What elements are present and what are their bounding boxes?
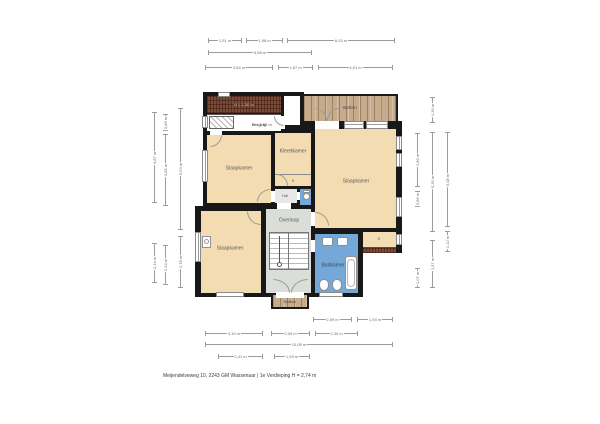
floorplan-canvas: Slaapkamer Kleedkamer K Hal Slaapkamer O… bbox=[0, 0, 600, 424]
dimension-tick bbox=[272, 65, 273, 70]
dimension-tick bbox=[415, 287, 420, 288]
dimension-tick bbox=[246, 38, 247, 43]
dimension-line: 1,98 m bbox=[246, 37, 283, 44]
dimension-label: 3,85 m bbox=[164, 163, 168, 177]
dimension-tick bbox=[315, 331, 316, 336]
dimension-label: 3,64 m bbox=[232, 66, 246, 70]
dimension-tick bbox=[271, 331, 272, 336]
dimension-label: 5,35 m bbox=[431, 175, 435, 189]
dimension-tick bbox=[318, 65, 319, 70]
dimension-line: 1,93 m bbox=[357, 316, 393, 323]
dimension-tick bbox=[351, 317, 352, 322]
dimension-label: 6,03 m bbox=[334, 39, 348, 43]
dimension-label: 1,12 m bbox=[446, 234, 450, 248]
dimension-tick bbox=[205, 65, 206, 70]
dimension-line: 2,41 m bbox=[218, 353, 263, 360]
dimension-label: 4,01 m bbox=[348, 66, 362, 70]
dimension-line: 5,08 m bbox=[444, 132, 451, 227]
dimension-tick bbox=[392, 65, 393, 70]
dimension-label: 2,30 m bbox=[329, 332, 343, 336]
dimension-line: 2,89 m bbox=[414, 133, 421, 187]
dimension-line: 4,01 m bbox=[318, 64, 393, 71]
dimension-label: 1,93 m bbox=[368, 318, 382, 322]
dimension-tick bbox=[163, 134, 168, 135]
dimension-tick bbox=[357, 317, 358, 322]
dimension-line: 6,53 m bbox=[177, 108, 184, 230]
dimension-line: 2,78 m bbox=[177, 236, 184, 288]
dimension-tick bbox=[430, 132, 435, 133]
dimension-line: 1,51 m bbox=[208, 37, 242, 44]
dimension-tick bbox=[152, 112, 157, 113]
dimension-tick bbox=[262, 354, 263, 359]
dimension-label: 2,78 m bbox=[179, 255, 183, 269]
dimension-tick bbox=[208, 38, 209, 43]
dimension-line: 0,86 m bbox=[162, 114, 169, 131]
dimension-tick bbox=[311, 50, 312, 55]
dimension-tick bbox=[445, 132, 450, 133]
dimension-tick bbox=[208, 50, 209, 55]
dimension-label: 5,58 m bbox=[253, 51, 267, 55]
dimension-line: 10,05 m bbox=[205, 341, 393, 348]
dimension-tick bbox=[282, 38, 283, 43]
dimension-tick bbox=[313, 317, 314, 322]
dimension-line: 1,87 m bbox=[278, 64, 313, 71]
dimension-tick bbox=[392, 317, 393, 322]
dimension-label: 2,14 m bbox=[164, 258, 168, 272]
dimension-line: 1,07 m bbox=[414, 268, 421, 288]
dimension-tick bbox=[309, 354, 310, 359]
dimension-tick bbox=[178, 108, 183, 109]
dimension-label: 4,87 m bbox=[153, 150, 157, 164]
dimension-tick bbox=[274, 354, 275, 359]
dimension-tick bbox=[312, 65, 313, 70]
dimension-label: 1,98 m bbox=[257, 39, 271, 43]
dimension-label: 2,09 m bbox=[325, 318, 339, 322]
dimension-tick bbox=[163, 130, 168, 131]
dimension-label: 2,09 m bbox=[283, 332, 297, 336]
dimension-line: 3,64 m bbox=[205, 64, 273, 71]
dimension-line: 1,39 m bbox=[429, 97, 436, 123]
dimension-tick bbox=[163, 284, 168, 285]
dimension-tick bbox=[430, 122, 435, 123]
dimension-tick bbox=[415, 268, 420, 269]
dimension-tick bbox=[163, 245, 168, 246]
dimension-line: 4,87 m bbox=[151, 112, 158, 203]
dimension-tick bbox=[287, 38, 288, 43]
dimension-tick bbox=[278, 65, 279, 70]
dimension-layer: 1,51 m1,98 m6,03 m5,58 m3,64 m1,87 m4,01… bbox=[0, 0, 600, 424]
dimension-tick bbox=[430, 97, 435, 98]
dimension-tick bbox=[394, 38, 395, 43]
dimension-line: 2,14 m bbox=[162, 245, 169, 285]
dimension-tick bbox=[152, 202, 157, 203]
dimension-label: 1,07 m bbox=[416, 271, 420, 285]
dimension-tick bbox=[152, 243, 157, 244]
dimension-tick bbox=[178, 287, 183, 288]
dimension-label: 10,05 m bbox=[291, 343, 307, 347]
dimension-tick bbox=[415, 186, 420, 187]
dimension-tick bbox=[392, 342, 393, 347]
dimension-tick bbox=[415, 133, 420, 134]
dimension-label: 2,89 m bbox=[416, 153, 420, 167]
dimension-tick bbox=[445, 231, 450, 232]
dimension-label: 1,87 m bbox=[288, 66, 302, 70]
dimension-label: 2,57 m bbox=[431, 257, 435, 271]
dimension-label: 2,41 m bbox=[233, 355, 247, 359]
dimension-tick bbox=[445, 251, 450, 252]
dimension-tick bbox=[262, 331, 263, 336]
dimension-line: 5,35 m bbox=[429, 132, 436, 232]
dimension-line: 1,12 m bbox=[444, 231, 451, 252]
dimension-tick bbox=[163, 205, 168, 206]
dimension-tick bbox=[205, 331, 206, 336]
dimension-label: 6,53 m bbox=[179, 162, 183, 176]
dimension-tick bbox=[241, 38, 242, 43]
dimension-label: 0,86 m bbox=[416, 192, 420, 206]
dimension-line: 3,10 m bbox=[205, 330, 263, 337]
dimension-line: 1,93 m bbox=[274, 353, 310, 360]
dimension-line: 2,09 m bbox=[313, 316, 352, 323]
dimension-label: 2,14 m bbox=[153, 256, 157, 270]
dimension-tick bbox=[430, 240, 435, 241]
dimension-line: 0,86 m bbox=[414, 191, 421, 207]
dimension-label: 1,51 m bbox=[218, 39, 232, 43]
dimension-tick bbox=[178, 229, 183, 230]
dimension-tick bbox=[445, 226, 450, 227]
dimension-tick bbox=[430, 231, 435, 232]
dimension-line: 2,14 m bbox=[151, 243, 158, 283]
dimension-line: 5,58 m bbox=[208, 49, 312, 56]
dimension-label: 3,10 m bbox=[227, 332, 241, 336]
dimension-line: 6,03 m bbox=[287, 37, 395, 44]
dimension-line: 2,57 m bbox=[429, 240, 436, 288]
dimension-tick bbox=[178, 236, 183, 237]
dimension-tick bbox=[415, 206, 420, 207]
dimension-line: 2,09 m bbox=[271, 330, 310, 337]
dimension-label: 1,93 m bbox=[285, 355, 299, 359]
dimension-label: 1,39 m bbox=[431, 103, 435, 117]
dimension-label: 5,08 m bbox=[446, 172, 450, 186]
dimension-tick bbox=[309, 331, 310, 336]
dimension-line: 2,30 m bbox=[315, 330, 358, 337]
dimension-tick bbox=[163, 114, 168, 115]
dimension-tick bbox=[152, 282, 157, 283]
dimension-tick bbox=[205, 342, 206, 347]
dimension-tick bbox=[430, 287, 435, 288]
dimension-tick bbox=[357, 331, 358, 336]
dimension-tick bbox=[218, 354, 219, 359]
plan-caption: Meijendelseweg 10, 2243 GM Wassenaar | 1… bbox=[163, 374, 316, 379]
dimension-label: 0,86 m bbox=[164, 115, 168, 129]
dimension-line: 3,85 m bbox=[162, 134, 169, 206]
